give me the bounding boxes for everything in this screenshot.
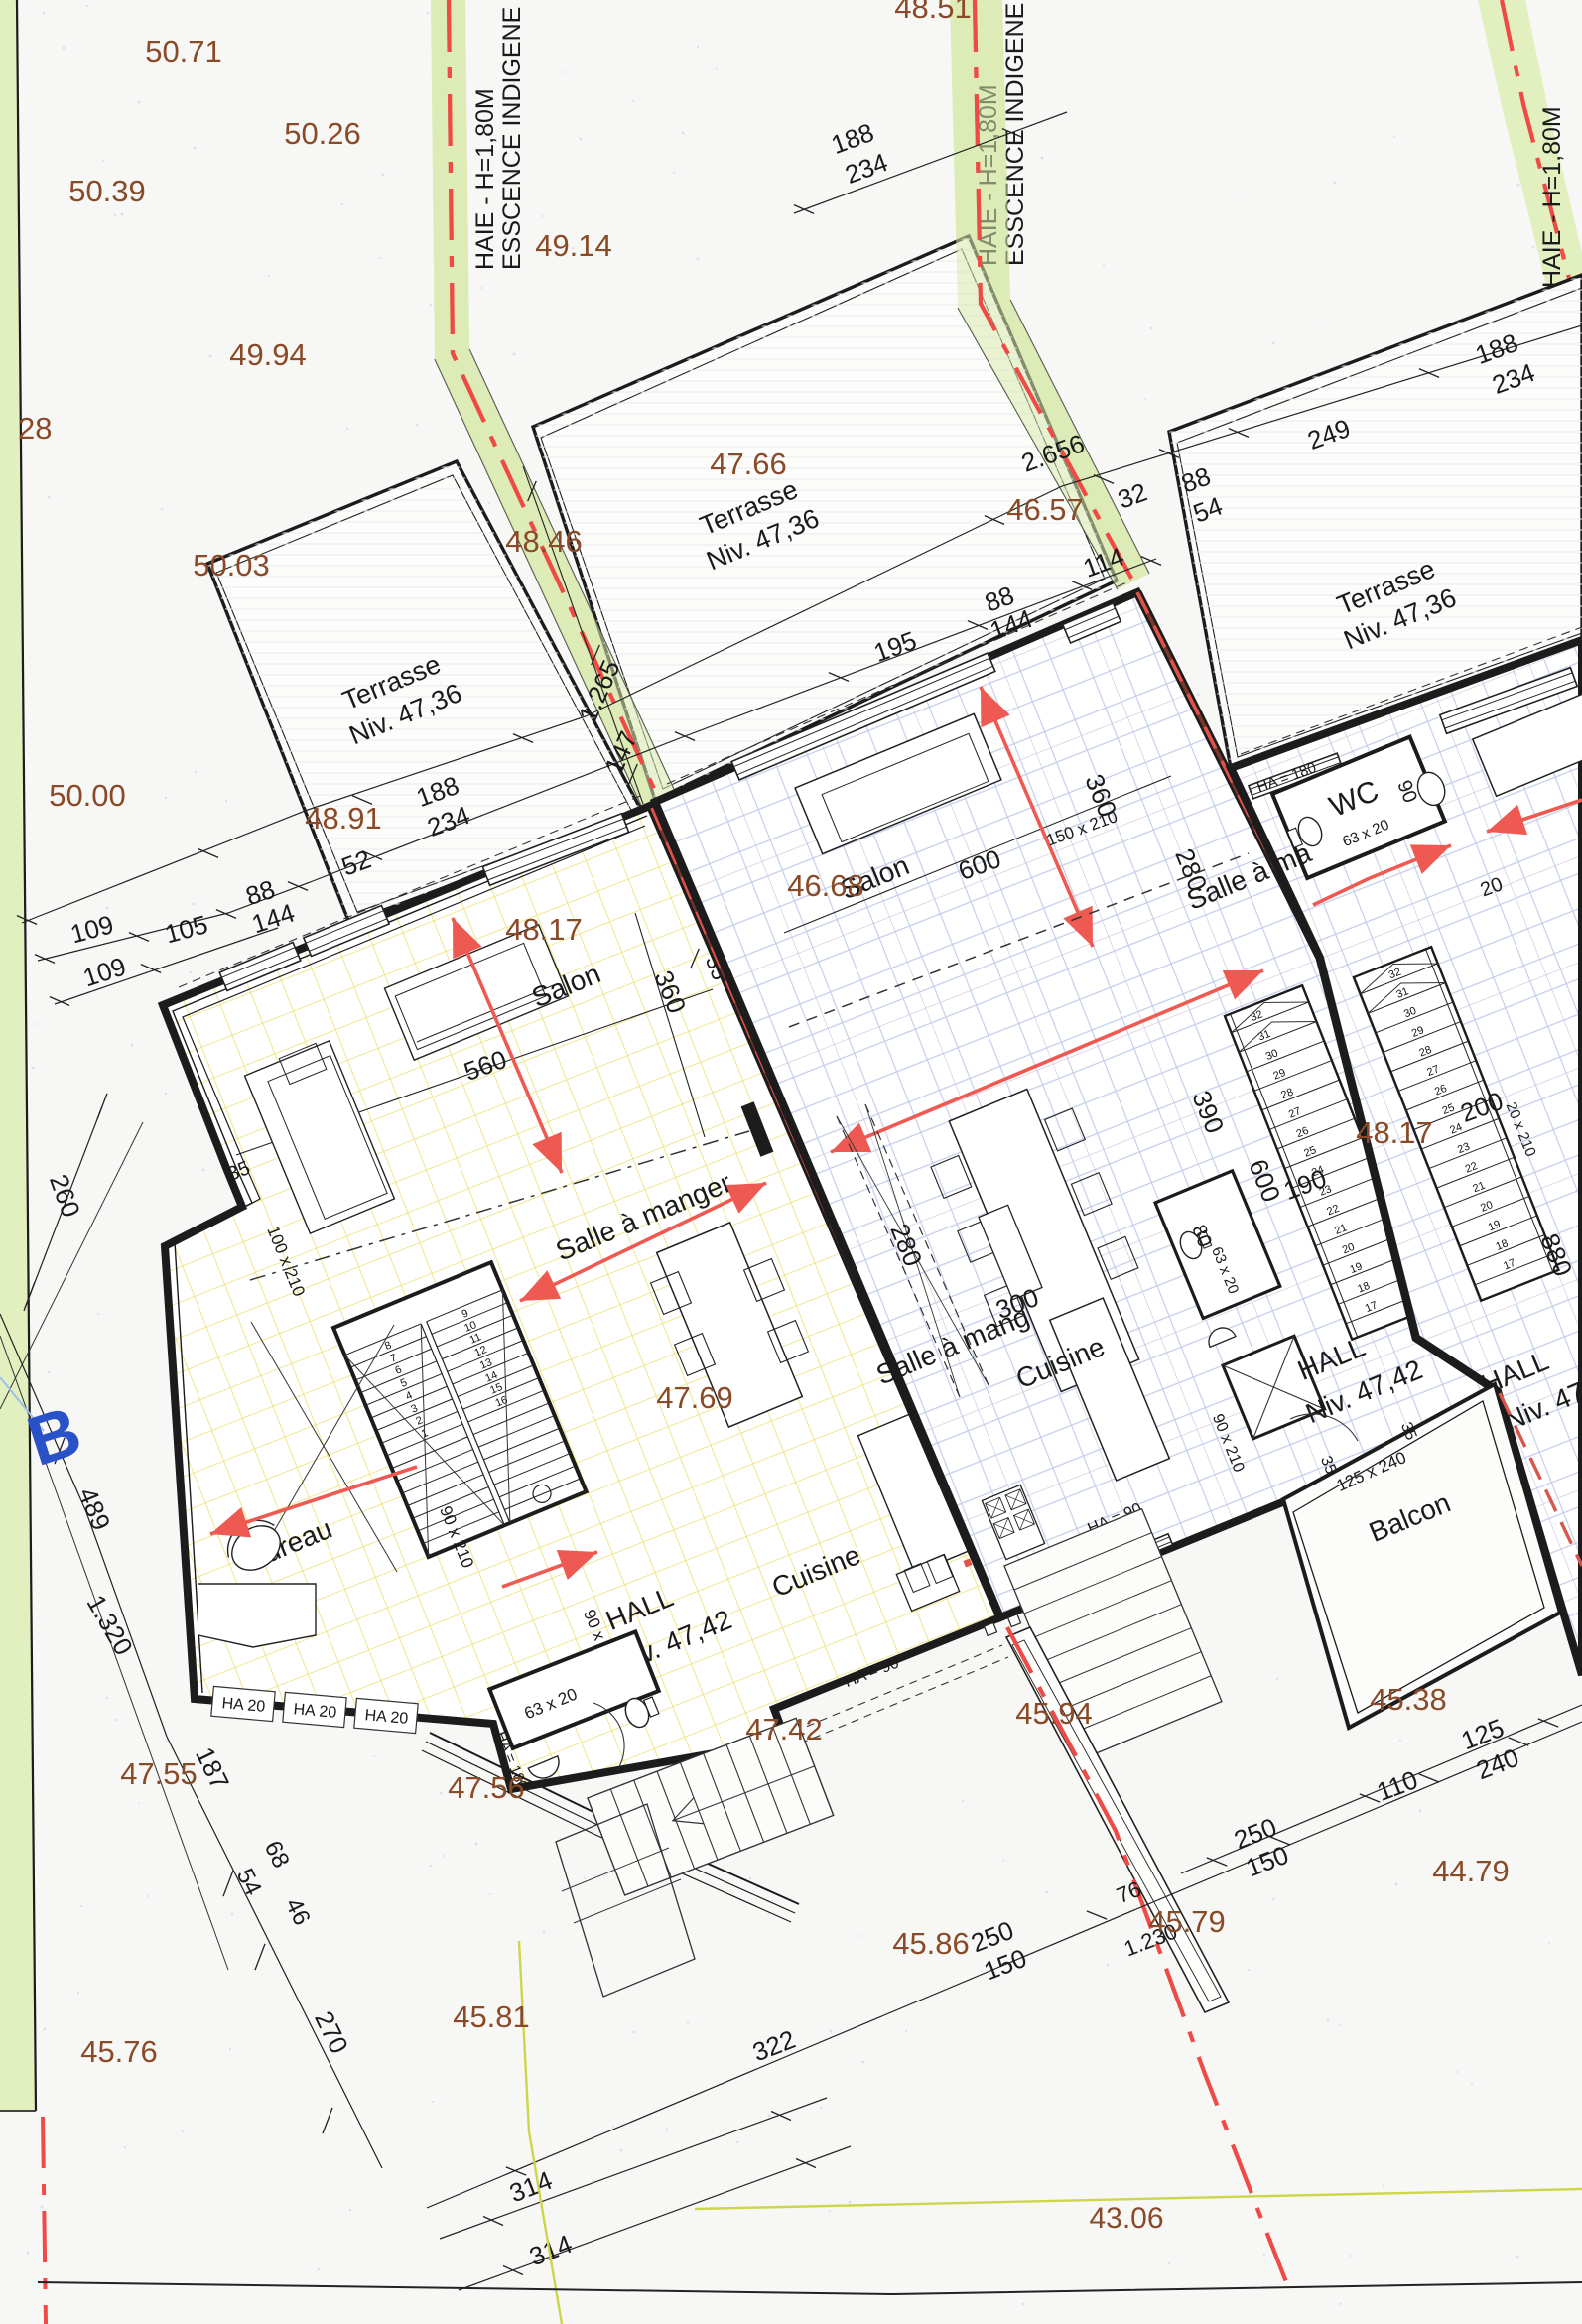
svg-text:HAIE - H=1,80M: HAIE - H=1,80M bbox=[471, 88, 499, 270]
svg-text:48.17: 48.17 bbox=[505, 912, 583, 947]
svg-text:45.94: 45.94 bbox=[1015, 1696, 1093, 1731]
svg-text:47.42: 47.42 bbox=[745, 1712, 823, 1746]
svg-text:49.94: 49.94 bbox=[229, 337, 307, 372]
svg-text:45.76: 45.76 bbox=[80, 2034, 158, 2069]
svg-text:47.66: 47.66 bbox=[710, 447, 787, 481]
svg-text:43.06: 43.06 bbox=[1089, 2202, 1163, 2235]
svg-text:28: 28 bbox=[18, 411, 52, 446]
svg-text:45.86: 45.86 bbox=[892, 1926, 970, 1961]
svg-text:46.57: 46.57 bbox=[1006, 492, 1084, 527]
svg-text:45.81: 45.81 bbox=[453, 2000, 530, 2034]
svg-text:48.91: 48.91 bbox=[305, 801, 382, 836]
svg-text:47.55: 47.55 bbox=[120, 1756, 198, 1791]
svg-text:47.56: 47.56 bbox=[448, 1770, 525, 1805]
svg-text:45.79: 45.79 bbox=[1148, 1904, 1226, 1939]
svg-text:50.03: 50.03 bbox=[193, 548, 270, 582]
svg-text:50.00: 50.00 bbox=[49, 778, 126, 813]
svg-text:46.68: 46.68 bbox=[787, 868, 864, 903]
svg-text:50.39: 50.39 bbox=[68, 174, 146, 208]
svg-text:ESSCENCE INDIGENE: ESSCENCE INDIGENE bbox=[498, 7, 526, 270]
svg-text:50.26: 50.26 bbox=[284, 116, 361, 151]
svg-text:HAIE - H=1,80M: HAIE - H=1,80M bbox=[1538, 106, 1566, 288]
svg-text:45.38: 45.38 bbox=[1370, 1682, 1447, 1717]
svg-text:48.46: 48.46 bbox=[505, 524, 583, 559]
svg-text:49.14: 49.14 bbox=[535, 228, 612, 263]
svg-text:48.51: 48.51 bbox=[894, 0, 972, 25]
svg-text:44.79: 44.79 bbox=[1432, 1854, 1510, 1888]
svg-text:47.69: 47.69 bbox=[656, 1380, 733, 1415]
svg-text:48.17: 48.17 bbox=[1356, 1115, 1433, 1150]
svg-text:50.71: 50.71 bbox=[145, 34, 222, 68]
